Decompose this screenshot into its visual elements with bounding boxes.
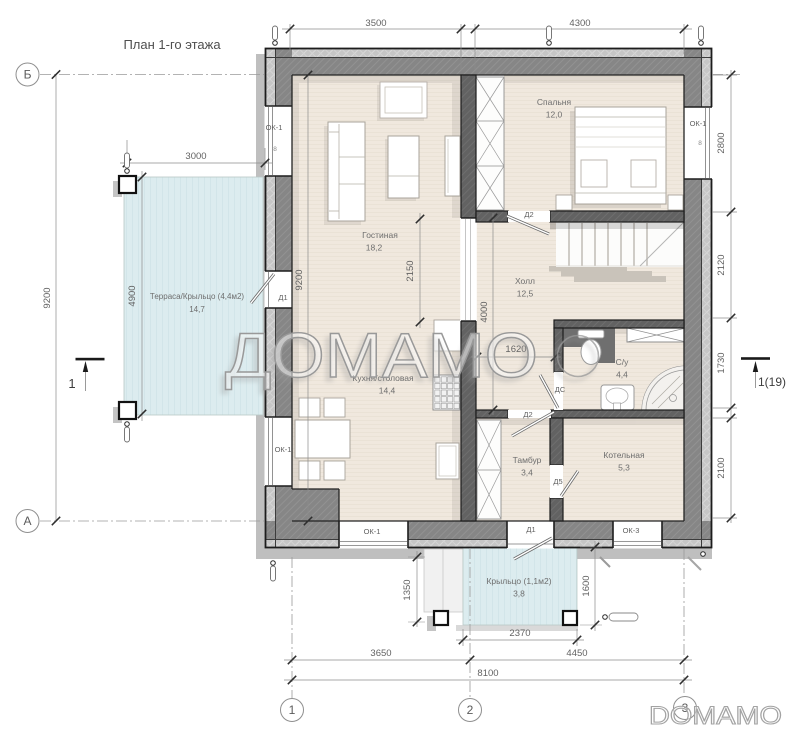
svg-text:1350: 1350 xyxy=(402,579,413,600)
svg-text:3500: 3500 xyxy=(365,18,386,29)
svg-text:Д5: Д5 xyxy=(553,477,562,486)
svg-text:Д2: Д2 xyxy=(523,410,532,419)
svg-text:12,5: 12,5 xyxy=(517,289,534,299)
svg-text:3650: 3650 xyxy=(370,648,391,659)
svg-text:2370: 2370 xyxy=(509,628,530,639)
svg-text:3000: 3000 xyxy=(185,151,206,162)
svg-text:Холл: Холл xyxy=(515,276,535,286)
svg-text:2100: 2100 xyxy=(716,457,727,478)
svg-text:Тамбур: Тамбур xyxy=(513,455,542,465)
svg-text:4000: 4000 xyxy=(479,301,490,322)
svg-text:12,0: 12,0 xyxy=(546,110,563,120)
svg-text:1600: 1600 xyxy=(581,575,592,596)
svg-text:14,7: 14,7 xyxy=(189,305,205,314)
svg-text:8100: 8100 xyxy=(477,668,498,679)
svg-text:Котельная: Котельная xyxy=(603,450,645,460)
svg-text:4450: 4450 xyxy=(566,648,587,659)
svg-text:8: 8 xyxy=(273,146,277,153)
svg-text:ОК-1: ОК-1 xyxy=(364,527,381,536)
svg-text:5,3: 5,3 xyxy=(618,463,630,473)
svg-text:3,8: 3,8 xyxy=(513,589,525,599)
svg-text:4,4: 4,4 xyxy=(616,370,628,380)
svg-text:2: 2 xyxy=(467,703,474,717)
svg-text:Б: Б xyxy=(24,68,32,82)
svg-text:А: А xyxy=(23,514,31,528)
svg-text:1730: 1730 xyxy=(716,352,727,373)
svg-text:2150: 2150 xyxy=(405,260,416,281)
svg-text:DOMAMO: DOMAMO xyxy=(649,702,782,730)
svg-text:Крыльцо (1,1м2): Крыльцо (1,1м2) xyxy=(486,576,551,586)
svg-text:Д2: Д2 xyxy=(524,210,533,219)
svg-text:Терраса/Крыльцо (4,4м2): Терраса/Крыльцо (4,4м2) xyxy=(150,292,245,301)
svg-text:1: 1 xyxy=(68,376,75,391)
svg-text:ОК-1: ОК-1 xyxy=(266,123,283,132)
svg-text:Гостиная: Гостиная xyxy=(362,230,398,240)
svg-text:1: 1 xyxy=(289,703,296,717)
svg-text:ДС: ДС xyxy=(555,385,566,394)
svg-text:Д1: Д1 xyxy=(278,293,287,302)
svg-text:ОК-1: ОК-1 xyxy=(690,119,707,128)
svg-text:С/у: С/у xyxy=(616,357,630,367)
svg-text:4300: 4300 xyxy=(569,18,590,29)
svg-text:План 1-го этажа: План 1-го этажа xyxy=(123,37,221,52)
svg-text:ОК-1: ОК-1 xyxy=(275,445,292,454)
svg-text:3,4: 3,4 xyxy=(521,468,533,478)
svg-text:Спальня: Спальня xyxy=(537,97,572,107)
svg-text:2800: 2800 xyxy=(716,132,727,153)
svg-text:9200: 9200 xyxy=(42,287,53,308)
svg-text:Д1: Д1 xyxy=(526,525,535,534)
svg-text:9200: 9200 xyxy=(294,269,305,290)
svg-text:18,2: 18,2 xyxy=(366,243,383,253)
svg-text:4900: 4900 xyxy=(127,285,138,306)
svg-text:1(19): 1(19) xyxy=(758,375,786,389)
svg-text:8: 8 xyxy=(698,140,702,147)
svg-text:2120: 2120 xyxy=(716,254,727,275)
svg-text:ОК-3: ОК-3 xyxy=(623,526,640,535)
svg-text:ДОМАМО: ДОМАМО xyxy=(225,321,538,391)
